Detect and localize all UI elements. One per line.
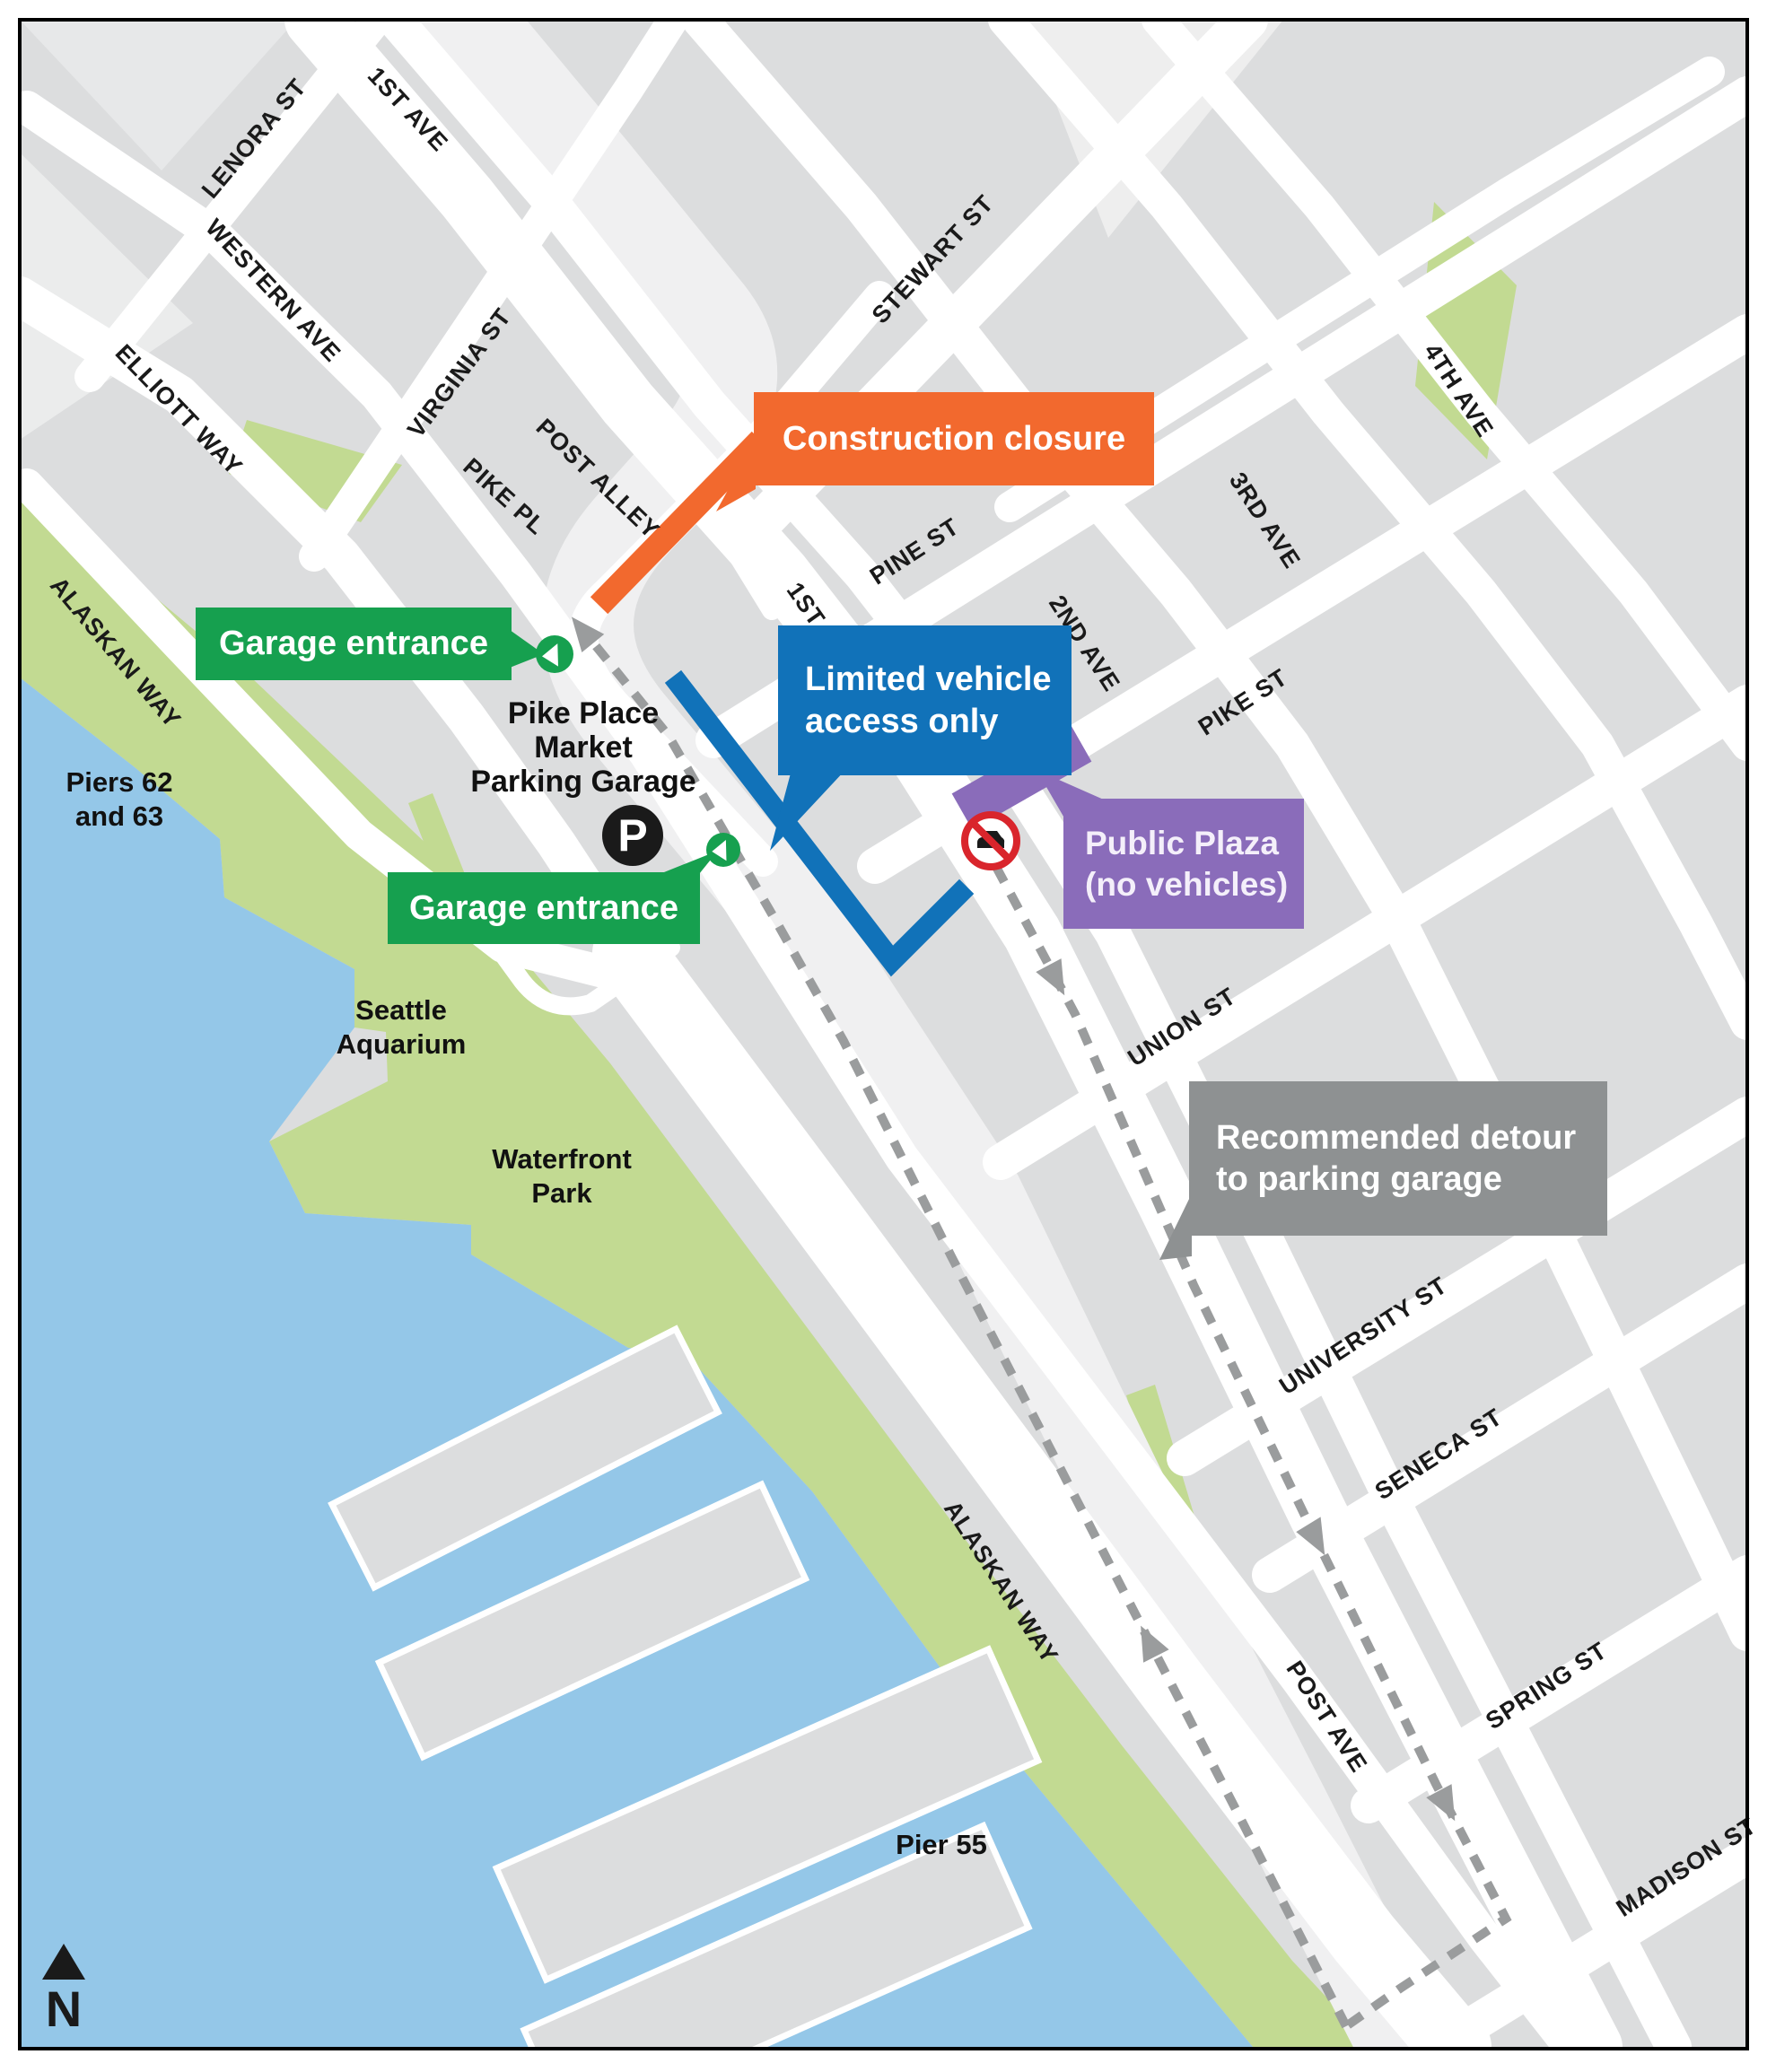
- garage-entrance-callout-2: Garage entrance: [388, 872, 700, 944]
- recommended-detour-callout: Recommended detour to parking garage: [1189, 1081, 1607, 1236]
- garage-entrance-marker-2: [706, 833, 740, 867]
- garage-entrance-label-2: Garage entrance: [388, 887, 700, 929]
- detour-line2: to parking garage: [1216, 1158, 1607, 1200]
- garage-entrance-label-1: Garage entrance: [196, 623, 512, 664]
- public-plaza-line2: (no vehicles): [1085, 864, 1304, 905]
- public-plaza-line1: Public Plaza: [1085, 823, 1304, 863]
- construction-detour-map: P N LENORA ST1ST AVEWESTERN AVEELLIOTT W…: [0, 0, 1767, 2072]
- detour-line1: Recommended detour: [1216, 1117, 1607, 1158]
- limited-access-line1: Limited vehicle: [805, 659, 1072, 700]
- svg-text:P: P: [617, 810, 647, 861]
- garage-entrance-callout-1: Garage entrance: [196, 608, 512, 680]
- svg-text:N: N: [46, 1980, 82, 2037]
- limited-access-line2: access only: [805, 701, 1072, 742]
- garage-entrance-marker-1: [536, 635, 573, 673]
- construction-closure-callout: Construction closure: [754, 392, 1154, 485]
- construction-closure-label: Construction closure: [754, 418, 1154, 459]
- parking-icon: P: [602, 805, 663, 866]
- public-plaza-callout: Public Plaza (no vehicles): [1063, 799, 1304, 929]
- place-label-pier-55: Pier 55: [896, 1829, 987, 1860]
- map-canvas: P N LENORA ST1ST AVEWESTERN AVEELLIOTT W…: [0, 0, 1767, 2072]
- no-vehicles-icon: [965, 815, 1017, 867]
- limited-access-callout: Limited vehicle access only: [778, 625, 1072, 775]
